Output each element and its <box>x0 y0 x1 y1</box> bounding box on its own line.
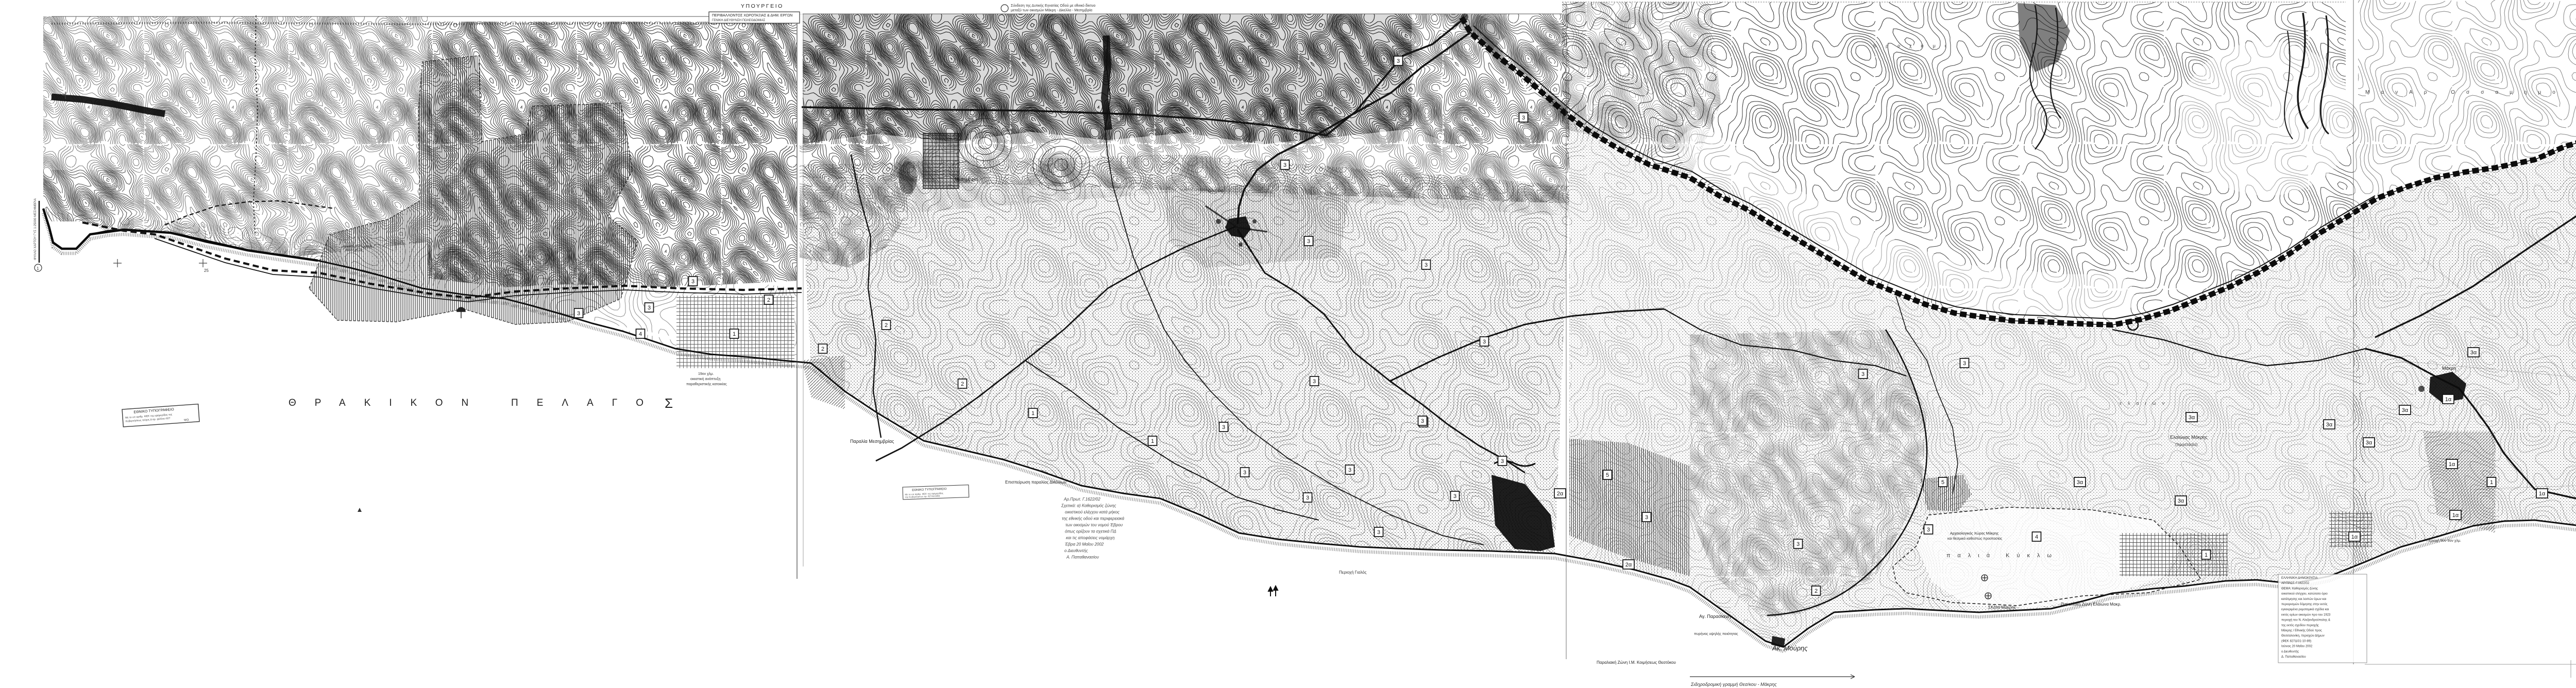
svg-text:των οικισμών του νομού Έβρου: των οικισμών του νομού Έβρου <box>1065 523 1123 527</box>
svg-text:ο Διευθυντής: ο Διευθυντής <box>1064 548 1088 553</box>
svg-text:3: 3 <box>1483 339 1486 345</box>
svg-text:Επισπείρωση παραλίας Δικέλλων: Επισπείρωση παραλίας Δικέλλων <box>1005 480 1066 485</box>
svg-text:Ακ. Μούρης: Ακ. Μούρης <box>1772 644 1808 652</box>
svg-text:Αρ.Πρωτ. Γ.1622/02: Αρ.Πρωτ. Γ.1622/02 <box>1063 497 1100 502</box>
svg-text:3α: 3α <box>2077 479 2083 486</box>
svg-text:παλιά Κύκλω: παλιά Κύκλω <box>1946 553 2059 559</box>
svg-text:3: 3 <box>1453 493 1456 500</box>
svg-text:Μεσημβρίας: Μεσημβρίας <box>346 249 363 252</box>
svg-text:και θεσμικό καθεστώς προστασία: και θεσμικό καθεστώς προστασίας <box>1947 537 2003 541</box>
svg-text:Παραλιακή Ζώνη Ελαιώνα Μακρ.: Παραλιακή Ζώνη Ελαιώνα Μακρ. <box>2061 602 2121 607</box>
svg-text:Δ. Παπαθανασίου: Δ. Παπαθανασίου <box>2281 656 2306 659</box>
svg-text:ΘΕΜΑ: Καθορισμός ζώνης: ΘΕΜΑ: Καθορισμός ζώνης <box>2281 587 2318 590</box>
svg-text:3: 3 <box>1307 238 1310 245</box>
svg-text:3: 3 <box>1313 379 1316 385</box>
svg-text:μεταξύ των οικισμών Μάκρη - Δί: μεταξύ των οικισμών Μάκρη - Δίκελλα - Με… <box>1011 8 1092 12</box>
svg-text:1: 1 <box>2490 479 2493 486</box>
svg-text:3α: 3α <box>2326 422 2333 428</box>
svg-text:της εκτός σχεδίου περιοχής: της εκτός σχεδίου περιοχής <box>2281 624 2319 627</box>
svg-text:4: 4 <box>2035 534 2038 540</box>
svg-text:3: 3 <box>1348 467 1351 473</box>
svg-text:2α: 2α <box>1557 491 1564 497</box>
svg-text:ΑΡ.ΠΡΩΤ. Γ.1622/02: ΑΡ.ΠΡΩΤ. Γ.1622/02 <box>2281 582 2310 585</box>
svg-text:Αρχαιολογικός χώρος: Αρχαιολογικός χώρος <box>343 245 372 248</box>
svg-text:1: 1 <box>2205 552 2208 558</box>
svg-text:25: 25 <box>204 268 209 273</box>
svg-text:Α. Παπαθανασίου: Α. Παπαθανασίου <box>1066 555 1099 560</box>
svg-text:1: 1 <box>1151 438 1154 444</box>
svg-text:οικιστικού ελέγχου, κατώτατο ό: οικιστικού ελέγχου, κατώτατο όριο <box>2281 592 2328 596</box>
svg-text:2: 2 <box>961 381 964 387</box>
svg-text:3: 3 <box>1425 262 1428 268</box>
svg-text:Παραλία Μεσημβρίας: Παραλία Μεσημβρίας <box>850 439 894 444</box>
svg-text:Έβρα 20 Μαΐου 2002: Έβρα 20 Μαΐου 2002 <box>1065 542 1104 547</box>
svg-text:5: 5 <box>1606 472 1609 478</box>
svg-text:Σύνδεση της Δυτικής Εγνατίας Ο: Σύνδεση της Δυτικής Εγνατίας Οδού με εθν… <box>1011 4 1095 8</box>
svg-text:ΨΟ: ΨΟ <box>184 419 189 422</box>
svg-text:3: 3 <box>1377 529 1380 536</box>
svg-text:πυρήνας υψηλής ποιότητας: πυρήνας υψηλής ποιότητας <box>1694 632 1738 636</box>
svg-text:2: 2 <box>1815 588 1818 594</box>
svg-text:1α: 1α <box>2445 397 2452 403</box>
svg-text:1: 1 <box>1031 410 1035 417</box>
svg-text:1α: 1α <box>2452 512 2459 519</box>
svg-text:εκτός ορίων οικισμών προ του 1: εκτός ορίων οικισμών προ του 1923 <box>2281 613 2331 616</box>
svg-text:ελαιών: ελαιών <box>2120 401 2171 406</box>
svg-text:3α: 3α <box>2178 498 2184 504</box>
svg-text:Αρχαιολογικός Χώρος Μάκρης: Αρχαιολογικός Χώρος Μάκρης <box>1950 531 1999 536</box>
svg-text:Παραλιακή Ζώνη Ι.Μ. Κοιμήσεως: Παραλιακή Ζώνη Ι.Μ. Κοιμήσεως Θεοτόκου <box>1597 660 1676 665</box>
svg-text:Ελαιώνας Μάκρης: Ελαιώνας Μάκρης <box>2170 435 2208 440</box>
svg-text:ΠΕΡΙΒΑΛΛΟΝΤΟΣ ΧΩΡΟΤΑΞΙΑΣ & ΔΗΜ: ΠΕΡΙΒΑΛΛΟΝΤΟΣ ΧΩΡΟΤΑΞΙΑΣ & ΔΗΜ. ΕΡΓΩΝ <box>712 14 792 18</box>
svg-text:ΘΡΑΚΙΚΟΝ: ΘΡΑΚΙΚΟΝ <box>289 398 487 408</box>
svg-text:οικιστικού ελέγχου κατά μήκος: οικιστικού ελέγχου κατά μήκος <box>1065 510 1120 514</box>
svg-text:και τις αποφάσεις νομάρχη: και τις αποφάσεις νομάρχη <box>1066 536 1115 540</box>
svg-text:19ον χλμ.: 19ον χλμ. <box>698 372 714 376</box>
svg-text:3: 3 <box>1283 162 1286 168</box>
svg-text:2α: 2α <box>1625 562 1632 568</box>
svg-text:3: 3 <box>1927 527 1930 533</box>
svg-text:(ΦΕΚ 827Δ/31-10-89): (ΦΕΚ 827Δ/31-10-89) <box>2281 640 2311 643</box>
svg-text:3: 3 <box>1501 458 1504 465</box>
svg-text:της εθνικής οδού και περιφερει: της εθνικής οδού και περιφερειακά <box>1062 517 1124 521</box>
svg-text:ΦΥΛΛΟ ΧΑΡΤΟΥ ΓΥΣ 1:25000 ΜΕΣΗΜ: ΦΥΛΛΟ ΧΑΡΤΟΥ ΓΥΣ 1:25000 ΜΕΣΗΜΒΡΙΑ <box>34 198 37 260</box>
svg-text:περιοχή του Ν. Αλεξανδρούπολης: περιοχή του Ν. Αλεξανδρούπολης & <box>2281 618 2330 622</box>
svg-text:4: 4 <box>639 331 642 337</box>
svg-text:Μάκρης / Εθνικής Οδού προς: Μάκρης / Εθνικής Οδού προς <box>2281 629 2322 632</box>
svg-text:2: 2 <box>767 297 770 303</box>
svg-text:ΥΠΟΥΡΓΕΙΟ: ΥΠΟΥΡΓΕΙΟ <box>741 3 784 9</box>
svg-text:3: 3 <box>577 311 580 317</box>
svg-text:Ιούνιος 20 Μαΐου 2002: Ιούνιος 20 Μαΐου 2002 <box>2281 645 2313 648</box>
svg-text:Θεσσαλονίκη, περιοχών Δήμων: Θεσσαλονίκη, περιοχών Δήμων <box>2281 634 2325 638</box>
svg-text:2: 2 <box>821 346 824 352</box>
svg-text:Βροχάμι: Βροχάμι <box>1873 43 1955 48</box>
svg-text:ΕΛΛΗΝΙΚΗ ΔΗΜΟΚΡΑΤΙΑ: ΕΛΛΗΝΙΚΗ ΔΗΜΟΚΡΑΤΙΑ <box>2281 577 2317 580</box>
svg-text:3: 3 <box>1645 514 1648 521</box>
svg-text:Μεσημβρία: Μεσημβρία <box>955 177 978 182</box>
svg-text:5: 5 <box>1941 479 1944 486</box>
svg-text:1α: 1α <box>2351 534 2358 540</box>
svg-text:Περιοχή Γιαλός: Περιοχή Γιαλός <box>1339 570 1367 575</box>
svg-text:κατάτμησης και λοιπών όρων και: κατάτμησης και λοιπών όρων και <box>2281 597 2327 601</box>
svg-text:3: 3 <box>1243 470 1246 476</box>
svg-text:3: 3 <box>691 279 694 285</box>
svg-text:Σ: Σ <box>665 395 673 411</box>
svg-text:1: 1 <box>37 266 39 271</box>
svg-text:3α: 3α <box>2366 440 2372 446</box>
svg-text:ΠΕΛΑΓΟ: ΠΕΛΑΓΟ <box>511 398 662 408</box>
svg-text:3α: 3α <box>2470 350 2477 356</box>
svg-text:3: 3 <box>1522 115 1525 121</box>
svg-text:3: 3 <box>1222 424 1225 431</box>
svg-text:2: 2 <box>885 322 888 329</box>
svg-text:3: 3 <box>1963 360 1966 367</box>
svg-text:Δίκελλα: Δίκελλα <box>1208 188 1224 193</box>
svg-text:ΣΚάλα Μάκρης: ΣΚάλα Μάκρης <box>1988 605 2016 610</box>
svg-text:3α: 3α <box>2402 407 2409 414</box>
svg-text:3: 3 <box>1397 58 1400 64</box>
svg-text:3: 3 <box>1306 495 1309 501</box>
svg-text:3α: 3α <box>2189 415 2195 421</box>
svg-text:περιορισμών δόμησης στην εκτός: περιορισμών δόμησης στην εκτός <box>2281 603 2328 606</box>
svg-text:1α: 1α <box>2449 461 2455 468</box>
svg-text:3: 3 <box>1861 371 1865 377</box>
svg-text:ΓΕΝΙΚΗ ΔΙΕΥΘΥΝΣΗ ΠΟΛΕΟΔΟΜΙΑΣ: ΓΕΝΙΚΗ ΔΙΕΥΘΥΝΣΗ ΠΟΛΕΟΔΟΜΙΑΣ <box>712 19 765 22</box>
svg-text:παραθεριστικής κατοικίας: παραθεριστικής κατοικίας <box>686 382 727 386</box>
svg-text:Αγ. Παρασκευή: Αγ. Παρασκευή <box>1699 614 1731 619</box>
svg-text:(προστασία): (προστασία) <box>2175 442 2198 447</box>
svg-text:όπως ορίζουν τα σχετικά ΠΔ: όπως ορίζουν τα σχετικά ΠΔ <box>1065 529 1116 534</box>
svg-text:3: 3 <box>1421 418 1424 424</box>
svg-text:οικιστική ανάπτυξη: οικιστική ανάπτυξη <box>690 377 721 381</box>
svg-text:1: 1 <box>733 331 736 337</box>
svg-text:3: 3 <box>648 305 651 311</box>
svg-text:ο Διευθυντής: ο Διευθυντής <box>2281 650 2299 653</box>
svg-text:1α: 1α <box>2539 491 2546 497</box>
svg-text:ΜανΑρ Οσσαμημο: ΜανΑρ Οσσαμημο <box>2365 90 2567 95</box>
svg-text:Μάκρη: Μάκρη <box>2442 366 2456 371</box>
svg-text:Σιδηροδρομική γραμμή Θεσ/κου -: Σιδηροδρομική γραμμή Θεσ/κου - Μάκρης <box>1690 682 1777 687</box>
svg-text:εγκεκριμένα ρυμοτομικά σχέδια: εγκεκριμένα ρυμοτομικά σχέδια και <box>2281 608 2329 611</box>
svg-text:3: 3 <box>1797 541 1800 547</box>
svg-text:Περιοχή 8ον-9ον χλμ.: Περιοχή 8ον-9ον χλμ. <box>2427 539 2461 543</box>
svg-text:Σχετικά: α) Καθορισμός ζώνης: Σχετικά: α) Καθορισμός ζώνης <box>1061 504 1116 508</box>
